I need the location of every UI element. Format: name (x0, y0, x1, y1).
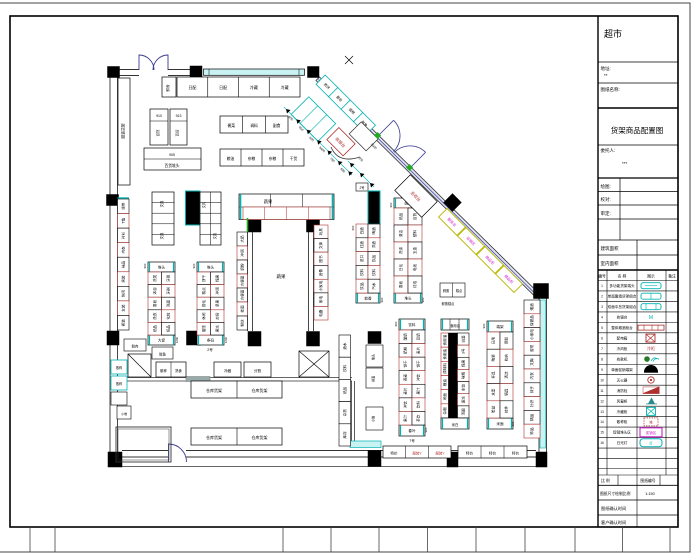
svg-text:鲜蛋糕点: 鲜蛋糕点 (442, 301, 456, 306)
svg-text:消防栓: 消防栓 (617, 388, 628, 393)
svg-text:配电箱: 配电箱 (617, 335, 628, 340)
svg-text:饰品: 饰品 (529, 427, 534, 435)
svg-text:袜品: 袜品 (120, 261, 125, 269)
svg-text:小家电: 小家电 (318, 280, 323, 291)
svg-text:9: 9 (601, 368, 603, 372)
svg-text:收款机: 收款机 (617, 356, 628, 361)
svg-text:内衣: 内衣 (529, 372, 534, 380)
svg-text:进口: 进口 (359, 255, 364, 263)
svg-text:2号: 2号 (360, 185, 365, 190)
svg-text:900: 900 (482, 323, 486, 328)
svg-text:糕点: 糕点 (201, 287, 206, 295)
svg-text:绘图:: 绘图: (601, 183, 611, 190)
svg-text:饮料: 饮料 (371, 268, 376, 276)
svg-text:干货: 干货 (290, 156, 298, 161)
svg-text:日配: 日配 (188, 85, 196, 90)
svg-text:13: 13 (600, 410, 604, 414)
svg-text:校对:: 校对: (601, 196, 611, 203)
svg-text:饮料: 饮料 (416, 401, 421, 409)
svg-text:保鲜: 保鲜 (504, 337, 509, 345)
svg-text:M: M (649, 315, 653, 321)
svg-text:坚果: 坚果 (214, 300, 219, 308)
svg-text:饼干: 饼干 (403, 360, 408, 368)
svg-text:杯具: 杯具 (491, 371, 496, 379)
svg-text:饮料: 饮料 (408, 322, 416, 327)
svg-text:6: 6 (601, 336, 603, 340)
svg-text:膨化: 膨化 (201, 300, 206, 308)
svg-text:奶粉: 奶粉 (239, 263, 244, 271)
svg-text:排面: 排面 (371, 376, 376, 382)
svg-text:灭火器: 灭火器 (617, 377, 628, 382)
svg-text:针织: 针织 (529, 400, 534, 408)
svg-text:委托人:: 委托人: (601, 147, 616, 153)
svg-text:炒货: 炒货 (214, 312, 219, 320)
svg-text:散称: 散称 (116, 381, 123, 386)
svg-text:库存: 库存 (342, 431, 347, 439)
svg-text:日用: 日用 (491, 337, 496, 345)
svg-text:果冻: 果冻 (214, 325, 219, 333)
svg-text:7号: 7号 (409, 438, 415, 443)
svg-text:奶粉: 奶粉 (403, 346, 408, 354)
svg-text:900: 900 (389, 202, 393, 207)
svg-text:水饺: 水饺 (460, 384, 465, 392)
svg-text:饮料: 饮料 (342, 364, 347, 372)
svg-text:味精: 味精 (460, 372, 465, 380)
svg-text:7: 7 (601, 347, 603, 351)
svg-text:食用油: 食用油 (442, 348, 447, 359)
svg-text:裤装: 裤装 (120, 319, 125, 327)
svg-text:日配: 日配 (219, 85, 227, 90)
svg-text:鲜蛋: 鲜蛋 (443, 288, 450, 293)
svg-text:审定:: 审定: (601, 210, 611, 217)
svg-text:文具: 文具 (212, 232, 217, 239)
svg-text:杂粮: 杂粮 (269, 156, 277, 161)
svg-text:化妆: 化妆 (165, 312, 170, 320)
svg-text:900: 900 (424, 427, 428, 432)
svg-text:16: 16 (600, 441, 604, 445)
svg-text:堆头: 堆头 (371, 353, 376, 360)
svg-text:洗涤: 洗涤 (398, 247, 403, 255)
svg-text:散称柜: 散称柜 (617, 419, 628, 424)
svg-text:蜜饯: 蜜饯 (201, 325, 206, 333)
svg-text:文体: 文体 (318, 241, 323, 249)
svg-text:洗面: 洗面 (165, 300, 170, 308)
svg-text:调料: 调料 (250, 123, 258, 128)
svg-text:饮品: 饮品 (371, 255, 376, 263)
svg-text:备注: 备注 (668, 274, 676, 279)
svg-text:方便面: 方便面 (239, 275, 244, 286)
svg-text:果汁: 果汁 (416, 387, 421, 395)
svg-text:窗帘: 窗帘 (529, 344, 534, 352)
svg-text:名 称: 名 称 (618, 274, 627, 279)
svg-text:百货堆头: 百货堆头 (164, 163, 179, 168)
svg-text:酱菜: 酱菜 (228, 123, 236, 128)
svg-text:冷藏柜: 冷藏柜 (617, 409, 628, 414)
svg-text:堆头: 堆头 (158, 265, 166, 270)
svg-text:米白: 米白 (452, 422, 459, 427)
svg-text:清洁: 清洁 (504, 371, 509, 379)
svg-text:豆奶: 豆奶 (416, 333, 421, 341)
svg-text:领带: 领带 (120, 202, 125, 210)
svg-text:特价: 特价 (512, 451, 520, 456)
svg-text:音像: 音像 (318, 269, 323, 277)
svg-text:男装: 男装 (120, 275, 125, 283)
svg-text:文具: 文具 (159, 232, 164, 239)
svg-text:900: 900 (394, 321, 398, 326)
svg-text:汤圆: 汤圆 (460, 408, 465, 416)
svg-text:客户确认时间: 客户确认时间 (601, 519, 626, 526)
svg-text:百货: 百货 (412, 213, 417, 221)
svg-text:杂粮: 杂粮 (248, 156, 256, 161)
svg-text:电器: 电器 (318, 309, 323, 317)
svg-text:牙膏: 牙膏 (165, 274, 170, 282)
svg-text:休闲: 休闲 (201, 312, 206, 320)
svg-text:酒水: 酒水 (342, 342, 347, 350)
svg-text:速冻: 速冻 (460, 396, 465, 404)
svg-text:杂粮: 杂粮 (442, 407, 447, 415)
svg-text:蚊香: 蚊香 (364, 296, 372, 301)
svg-text:15: 15 (600, 431, 604, 435)
svg-text:纸品: 纸品 (398, 213, 403, 221)
svg-text:小家电: 小家电 (529, 329, 534, 340)
svg-text:特价: 特价 (489, 451, 497, 456)
svg-text:沐浴: 沐浴 (152, 287, 157, 295)
svg-text:单面促销端架: 单面促销端架 (611, 367, 633, 372)
svg-text:1:150: 1:150 (645, 492, 655, 496)
svg-text:百货: 百货 (175, 129, 180, 136)
svg-text:食用油: 食用油 (442, 334, 447, 345)
svg-text:小堆: 小堆 (121, 411, 127, 416)
svg-text:果汁: 果汁 (403, 414, 408, 422)
svg-text:12: 12 (600, 399, 604, 403)
svg-text:燕麦: 燕麦 (403, 374, 408, 382)
svg-text:衬衫: 衬衫 (120, 231, 125, 239)
svg-text:红酒: 红酒 (359, 241, 364, 249)
svg-text:收纳: 收纳 (504, 354, 509, 362)
svg-text:休闲: 休闲 (120, 290, 125, 298)
svg-text:1200: 1200 (224, 336, 228, 343)
svg-text:图纸名称:: 图纸名称: (601, 86, 620, 93)
svg-text:特价: 特价 (390, 451, 398, 456)
svg-text:4: 4 (601, 316, 603, 320)
svg-text:水壶: 水壶 (491, 388, 496, 396)
svg-text:室内面积: 室内面积 (601, 260, 619, 267)
svg-text:散称: 散称 (160, 368, 167, 373)
svg-text:粮油: 粮油 (442, 379, 447, 387)
svg-text:洗发: 洗发 (152, 274, 157, 282)
svg-text:冷风柜: 冷风柜 (617, 346, 628, 351)
svg-text:地址:: 地址: (601, 65, 611, 71)
svg-text:超市: 超市 (604, 28, 622, 39)
svg-text:比 例: 比 例 (601, 478, 610, 483)
svg-text:糖果: 糖果 (214, 274, 219, 282)
svg-text:建筑面积: 建筑面积 (601, 245, 619, 252)
svg-text:风幕柜: 风幕柜 (617, 398, 628, 403)
svg-text:端架: 端架 (496, 324, 504, 329)
svg-text:2: 2 (601, 295, 603, 299)
svg-text:食用油: 食用油 (450, 323, 460, 328)
svg-text:清洁: 清洁 (398, 230, 403, 238)
svg-text:洋酒: 洋酒 (371, 241, 376, 249)
svg-text:文具: 文具 (159, 200, 164, 207)
svg-text:饮品: 饮品 (359, 282, 364, 290)
svg-text:香皂: 香皂 (152, 300, 157, 308)
svg-text:纸品: 纸品 (165, 325, 170, 333)
svg-text:大促: 大促 (158, 338, 166, 343)
svg-text:玩具: 玩具 (318, 228, 323, 236)
svg-text:家电: 家电 (318, 296, 323, 304)
svg-text:3: 3 (601, 305, 603, 309)
svg-text:春叶: 春叶 (408, 428, 416, 433)
svg-text:百货: 百货 (155, 129, 160, 136)
svg-text:糖果: 糖果 (460, 359, 465, 367)
svg-text:文胸: 文胸 (529, 358, 534, 366)
svg-text:仓库货架: 仓库货架 (252, 387, 268, 393)
svg-text:***: *** (622, 161, 628, 166)
svg-text:酸奶: 酸奶 (403, 333, 408, 341)
svg-text:蔬果: 蔬果 (264, 198, 273, 205)
svg-text:纸品: 纸品 (152, 325, 157, 333)
svg-text:2号: 2号 (207, 347, 213, 352)
svg-text:服装货架: 服装货架 (121, 123, 126, 138)
svg-text:促销堆头区: 促销堆头区 (613, 430, 631, 435)
svg-text:五金: 五金 (412, 247, 417, 255)
svg-text:鲜鱼: 鲜鱼 (159, 352, 166, 357)
svg-text:特价: 特价 (466, 451, 474, 456)
svg-text:洗衣: 洗衣 (152, 312, 157, 320)
svg-text:麦片: 麦片 (416, 346, 421, 354)
svg-text:双面中岛货架组合: 双面中岛货架组合 (608, 304, 637, 309)
svg-text:910: 910 (156, 114, 162, 118)
svg-text:冷柜: 冷柜 (647, 345, 655, 351)
svg-text:服装Y: 服装Y (412, 451, 422, 456)
svg-text:服装Y: 服装Y (435, 451, 445, 456)
svg-text:脸盆: 脸盆 (491, 405, 496, 413)
svg-text:小堆: 小堆 (371, 415, 376, 422)
svg-text:8: 8 (601, 357, 603, 361)
svg-text:5: 5 (601, 326, 603, 330)
svg-text:收银台: 收银台 (617, 315, 628, 320)
svg-text:10: 10 (600, 378, 604, 382)
svg-text:多功能货架端头: 多功能货架端头 (609, 283, 635, 288)
svg-text:啤酒: 啤酒 (371, 227, 376, 235)
svg-text:电池: 电池 (412, 264, 417, 272)
svg-text:女装: 女装 (120, 304, 125, 312)
svg-text:1: 1 (601, 284, 603, 288)
svg-text:牙刷: 牙刷 (165, 287, 170, 295)
svg-text:灯: 灯 (649, 440, 653, 445)
svg-text:锅具: 锅具 (504, 388, 509, 396)
svg-text:汽水: 汽水 (371, 282, 376, 290)
svg-text:挂件: 挂件 (504, 405, 509, 413)
svg-text:3号: 3号 (460, 348, 465, 354)
svg-text:冲调: 冲调 (214, 287, 219, 295)
svg-text:日化: 日化 (398, 264, 403, 272)
svg-text:粉丝: 粉丝 (239, 319, 244, 327)
svg-text:饼干: 饼干 (201, 274, 206, 282)
svg-text:冲调: 冲调 (239, 249, 244, 257)
svg-text:货架商品配置图: 货架商品配置图 (611, 125, 664, 135)
svg-text:冷藏: 冷藏 (224, 368, 232, 373)
svg-text:灯泡: 灯泡 (412, 281, 417, 289)
svg-text:冷藏: 冷藏 (281, 84, 289, 90)
svg-text:粮油: 粮油 (227, 156, 235, 161)
svg-text:散称: 散称 (116, 365, 123, 370)
svg-text:精品: 精品 (529, 413, 534, 421)
svg-text:11: 11 (600, 389, 604, 393)
svg-text:仓库货架: 仓库货架 (252, 434, 268, 440)
svg-text:调味料: 调味料 (442, 363, 447, 374)
svg-text:900: 900 (192, 263, 196, 268)
svg-text:900: 900 (421, 297, 425, 302)
svg-text:整体烟酒柜台: 整体烟酒柜台 (611, 325, 633, 330)
svg-text:堆: 堆 (649, 419, 653, 424)
svg-text:冲饮: 冲饮 (403, 401, 408, 409)
svg-text:单面靠墙货架组合: 单面靠墙货架组合 (608, 294, 637, 299)
svg-text:香皂: 香皂 (398, 281, 403, 289)
svg-text:图书: 图书 (318, 255, 323, 263)
svg-text:堆头: 堆头 (207, 265, 215, 270)
svg-text:方便面: 方便面 (239, 289, 244, 300)
svg-text:条码: 条码 (207, 338, 215, 343)
svg-text:挂面: 挂面 (239, 305, 244, 313)
svg-text:913: 913 (176, 114, 182, 118)
svg-text:日光灯: 日光灯 (617, 440, 628, 445)
svg-text:905: 905 (169, 153, 175, 157)
svg-text:图纸尺寸绘制比例: 图纸尺寸绘制比例 (600, 491, 631, 496)
svg-text:饼干: 饼干 (416, 360, 421, 368)
svg-text:蔬果: 蔬果 (277, 273, 286, 280)
svg-text:1200: 1200 (175, 336, 179, 343)
svg-text:分割: 分割 (254, 368, 262, 373)
svg-text:内衣: 内衣 (120, 246, 125, 254)
svg-text:冲饮: 冲饮 (416, 374, 421, 382)
svg-text:编号: 编号 (598, 274, 606, 279)
svg-text:副食: 副食 (273, 123, 281, 128)
svg-text:图示: 图示 (647, 275, 655, 279)
svg-text:麦片: 麦片 (403, 387, 408, 395)
svg-text:大奶: 大奶 (239, 235, 244, 243)
svg-text:900: 900 (143, 263, 147, 268)
svg-text:熟食: 熟食 (175, 368, 182, 373)
svg-text:杂货: 杂货 (342, 409, 347, 417)
svg-text:900: 900 (511, 421, 515, 426)
svg-text:糕点: 糕点 (456, 288, 463, 293)
svg-text:图纸编号: 图纸编号 (640, 478, 655, 483)
svg-text:茶饮: 茶饮 (416, 414, 421, 422)
svg-text:米面: 米面 (442, 393, 447, 401)
svg-text:鲜肉: 鲜肉 (132, 344, 139, 349)
svg-text:保健品: 保健品 (529, 315, 534, 326)
svg-text:仓库货架: 仓库货架 (206, 434, 222, 440)
svg-text:14: 14 (600, 420, 604, 424)
svg-text:图纸确认时间: 图纸确认时间 (601, 505, 626, 512)
svg-text:900: 900 (351, 225, 355, 230)
svg-text:**: ** (604, 73, 608, 78)
svg-text:纸品: 纸品 (342, 387, 347, 395)
svg-text:白酒: 白酒 (460, 335, 465, 343)
svg-text:T恤: T恤 (120, 218, 125, 224)
svg-text:文具: 文具 (201, 201, 206, 208)
svg-text:米面: 米面 (496, 421, 504, 426)
svg-text:塑料: 塑料 (412, 230, 417, 238)
svg-text:烟酒: 烟酒 (529, 303, 534, 311)
svg-text:鲜食: 鲜食 (165, 84, 170, 92)
svg-text:陶瓷: 陶瓷 (491, 354, 496, 362)
svg-text:袜子: 袜子 (529, 386, 534, 394)
svg-text:堆头: 堆头 (404, 296, 412, 301)
svg-text:900: 900 (380, 297, 384, 302)
svg-text:促销区: 促销区 (646, 430, 657, 435)
svg-text:冷藏: 冷藏 (250, 84, 258, 90)
svg-text:仓库货架: 仓库货架 (206, 387, 222, 393)
svg-text:饮料: 饮料 (359, 268, 364, 276)
svg-text:白酒: 白酒 (359, 227, 364, 235)
